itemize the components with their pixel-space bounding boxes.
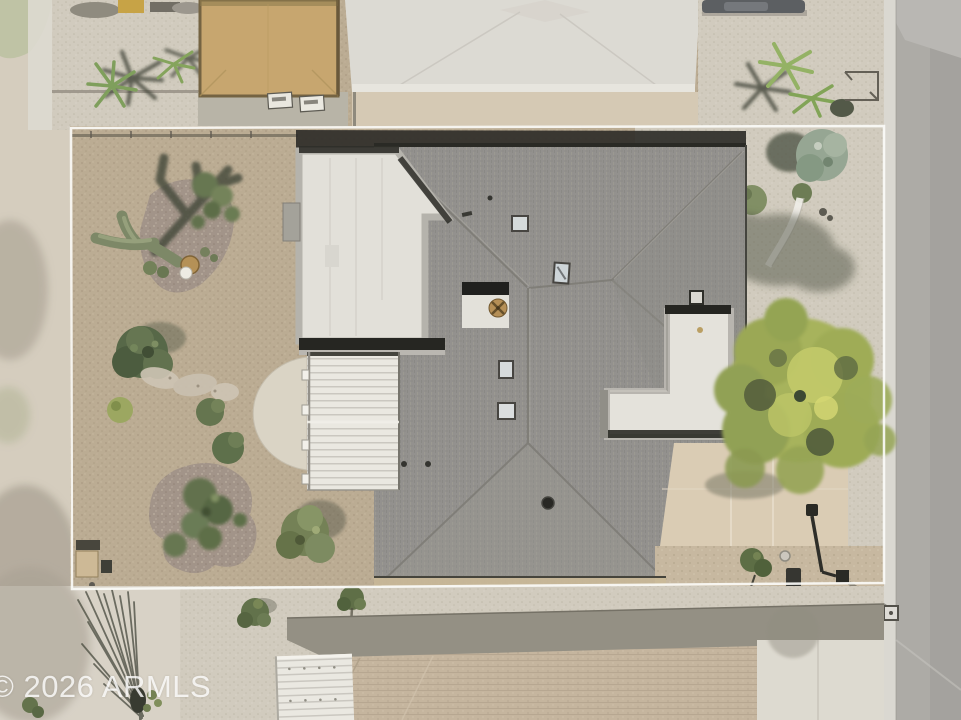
aerial-photo-canvas: [0, 0, 961, 720]
photo-wash: [0, 0, 961, 720]
watermark: © 2026 ARMLS: [0, 669, 211, 705]
aerial-photo: © 2026 ARMLS: [0, 0, 961, 720]
